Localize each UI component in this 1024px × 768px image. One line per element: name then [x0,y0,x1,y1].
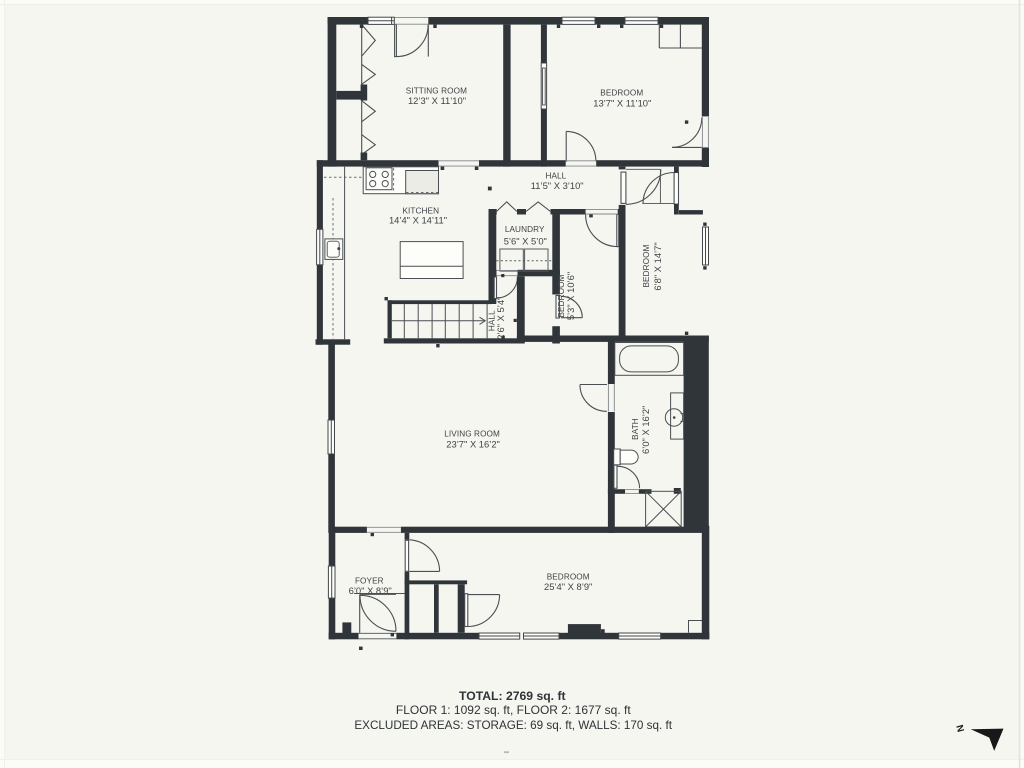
svg-text:EXCLUDED AREAS: STORAGE: 69 sq: EXCLUDED AREAS: STORAGE: 69 sq. ft, WALL… [354,719,672,732]
svg-text:25’4" X 8’9": 25’4" X 8’9" [544,581,592,592]
svg-text:14’4" X 14’11": 14’4" X 14’11" [389,214,447,225]
svg-text:6’8" X 14’7": 6’8" X 14’7" [652,242,663,290]
svg-text:12’3" X 11’10": 12’3" X 11’10" [408,95,466,106]
svg-text:6’0" X 16’2": 6’0" X 16’2" [640,406,651,454]
svg-text:LIVING ROOM: LIVING ROOM [444,429,500,438]
svg-text:5’6" X 5’0": 5’6" X 5’0" [504,236,547,247]
svg-text:13’7" X 11’10": 13’7" X 11’10" [593,97,651,108]
svg-text:2’6" X 5’4": 2’6" X 5’4" [495,297,506,340]
svg-text:BEDROOM: BEDROOM [642,244,651,287]
svg-text:5’3" X 10’6": 5’3" X 10’6" [565,272,576,320]
svg-text:BEDROOM: BEDROOM [600,89,643,98]
svg-text:LAUNDRY: LAUNDRY [505,225,545,234]
svg-text:23’7" X 16’2": 23’7" X 16’2" [446,439,500,450]
svg-text:TOTAL: 2769 sq. ft: TOTAL: 2769 sq. ft [459,689,566,703]
svg-text:11’5" X 3’10": 11’5" X 3’10" [531,180,584,191]
svg-text:FLOOR 1: 1092 sq. ft, FLOOR 2:: FLOOR 1: 1092 sq. ft, FLOOR 2: 1677 sq. … [396,703,631,717]
